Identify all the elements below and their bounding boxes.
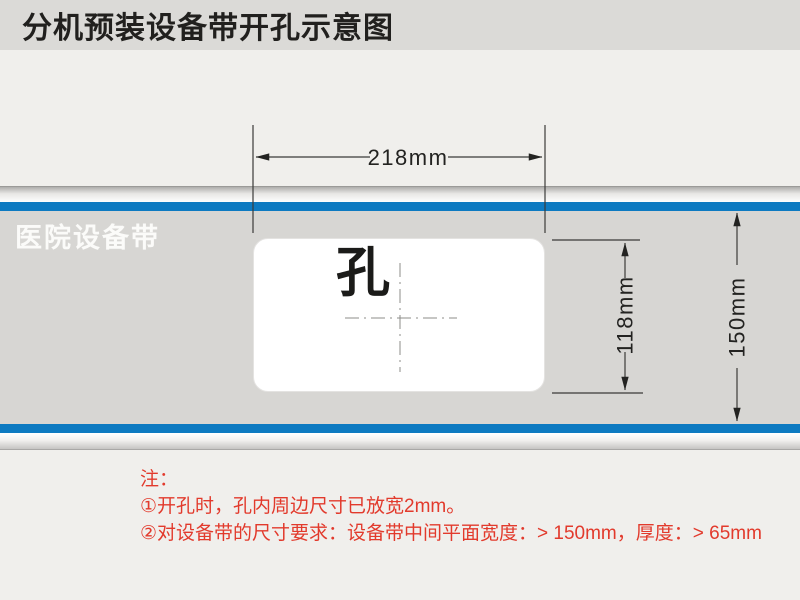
diagram-page: 分机预装设备带开孔示意图 医院设备带 孔 218mm (0, 0, 800, 600)
hole-cutout (253, 238, 545, 392)
note-item-1: ①开孔时，孔内周边尺寸已放宽2mm。 (140, 493, 762, 520)
belt-bottom-edge (0, 433, 800, 450)
notes-heading: 注： (140, 466, 762, 493)
notes-block: 注： ①开孔时，孔内周边尺寸已放宽2mm。 ②对设备带的尺寸要求：设备带中间平面… (140, 466, 762, 547)
hole-label: 孔 (336, 246, 390, 300)
belt-top-blue-stripe (0, 202, 800, 211)
title-bar: 分机预装设备带开孔示意图 (0, 0, 800, 50)
belt-top-edge (0, 186, 800, 202)
belt-label: 医院设备带 (15, 216, 160, 255)
page-title: 分机预装设备带开孔示意图 (22, 3, 394, 47)
belt-bottom-blue-stripe (0, 424, 800, 433)
dimension-label-width: 218mm (368, 145, 449, 170)
note-item-2: ②对设备带的尺寸要求：设备带中间平面宽度：> 150mm，厚度：> 65mm (140, 520, 762, 547)
